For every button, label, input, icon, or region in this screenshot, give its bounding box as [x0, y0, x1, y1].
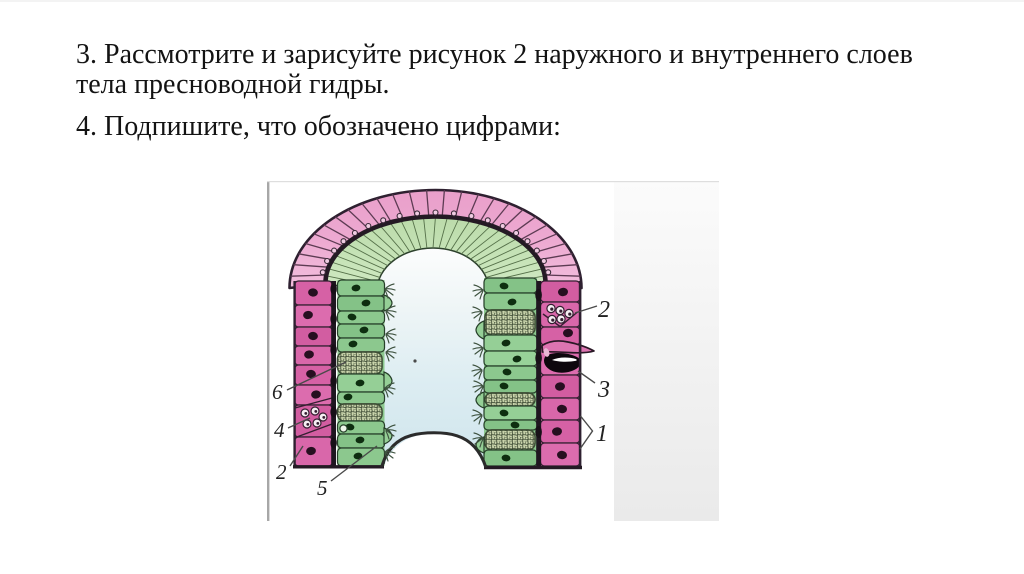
- svg-text:3: 3: [597, 377, 610, 403]
- svg-text:1: 1: [596, 421, 608, 447]
- svg-text:4: 4: [274, 418, 285, 442]
- svg-text:6: 6: [272, 380, 283, 404]
- svg-text:2: 2: [598, 297, 610, 323]
- svg-text:2: 2: [276, 460, 287, 484]
- svg-text:5: 5: [317, 476, 328, 500]
